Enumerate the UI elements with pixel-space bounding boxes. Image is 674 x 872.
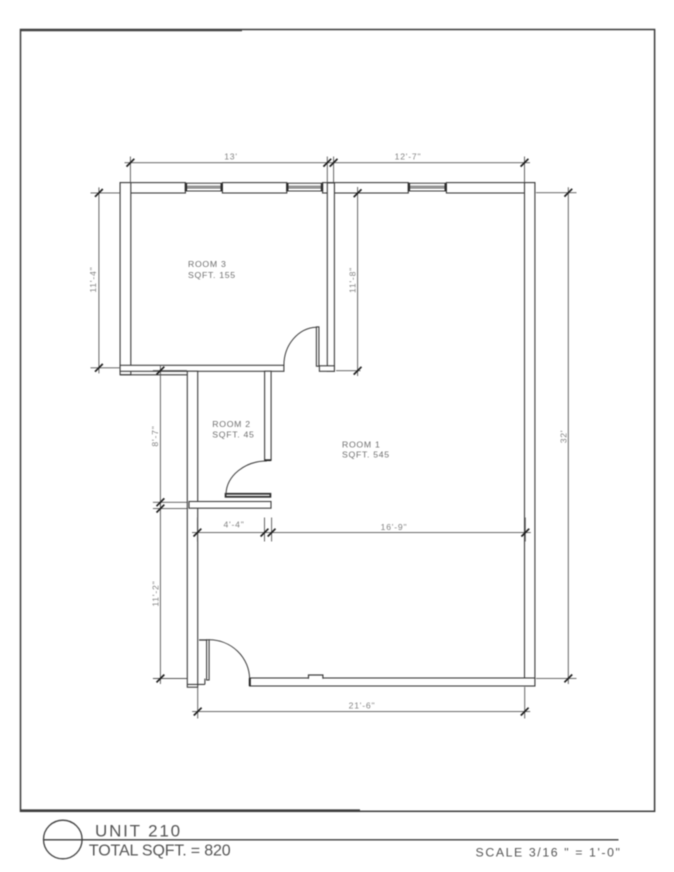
svg-text:32': 32' (558, 430, 568, 444)
svg-text:SQFT. 45: SQFT. 45 (212, 430, 254, 440)
svg-text:21'-6": 21'-6" (349, 701, 376, 711)
svg-text:ROOM 1: ROOM 1 (342, 440, 380, 450)
svg-text:12'-7": 12'-7" (395, 152, 422, 162)
svg-text:SQFT. 545: SQFT. 545 (342, 450, 390, 460)
svg-text:SCALE 3/16 " = 1'-0": SCALE 3/16 " = 1'-0" (476, 845, 622, 859)
svg-text:TOTAL SQFT. = 820: TOTAL SQFT. = 820 (89, 842, 231, 859)
svg-text:ROOM 3: ROOM 3 (188, 259, 226, 269)
svg-text:16'-9": 16'-9" (381, 522, 408, 532)
svg-text:11'-2": 11'-2" (150, 581, 160, 607)
svg-text:UNIT 210: UNIT 210 (95, 821, 182, 840)
svg-text:SQFT. 155: SQFT. 155 (188, 270, 236, 280)
svg-text:13': 13' (224, 152, 238, 162)
svg-text:11'-4": 11'-4" (88, 267, 98, 293)
svg-text:ROOM 2: ROOM 2 (212, 419, 250, 429)
svg-text:11'-8": 11'-8" (347, 267, 357, 293)
svg-text:4'-4": 4'-4" (223, 520, 244, 530)
svg-text:8'-7": 8'-7" (150, 425, 160, 446)
